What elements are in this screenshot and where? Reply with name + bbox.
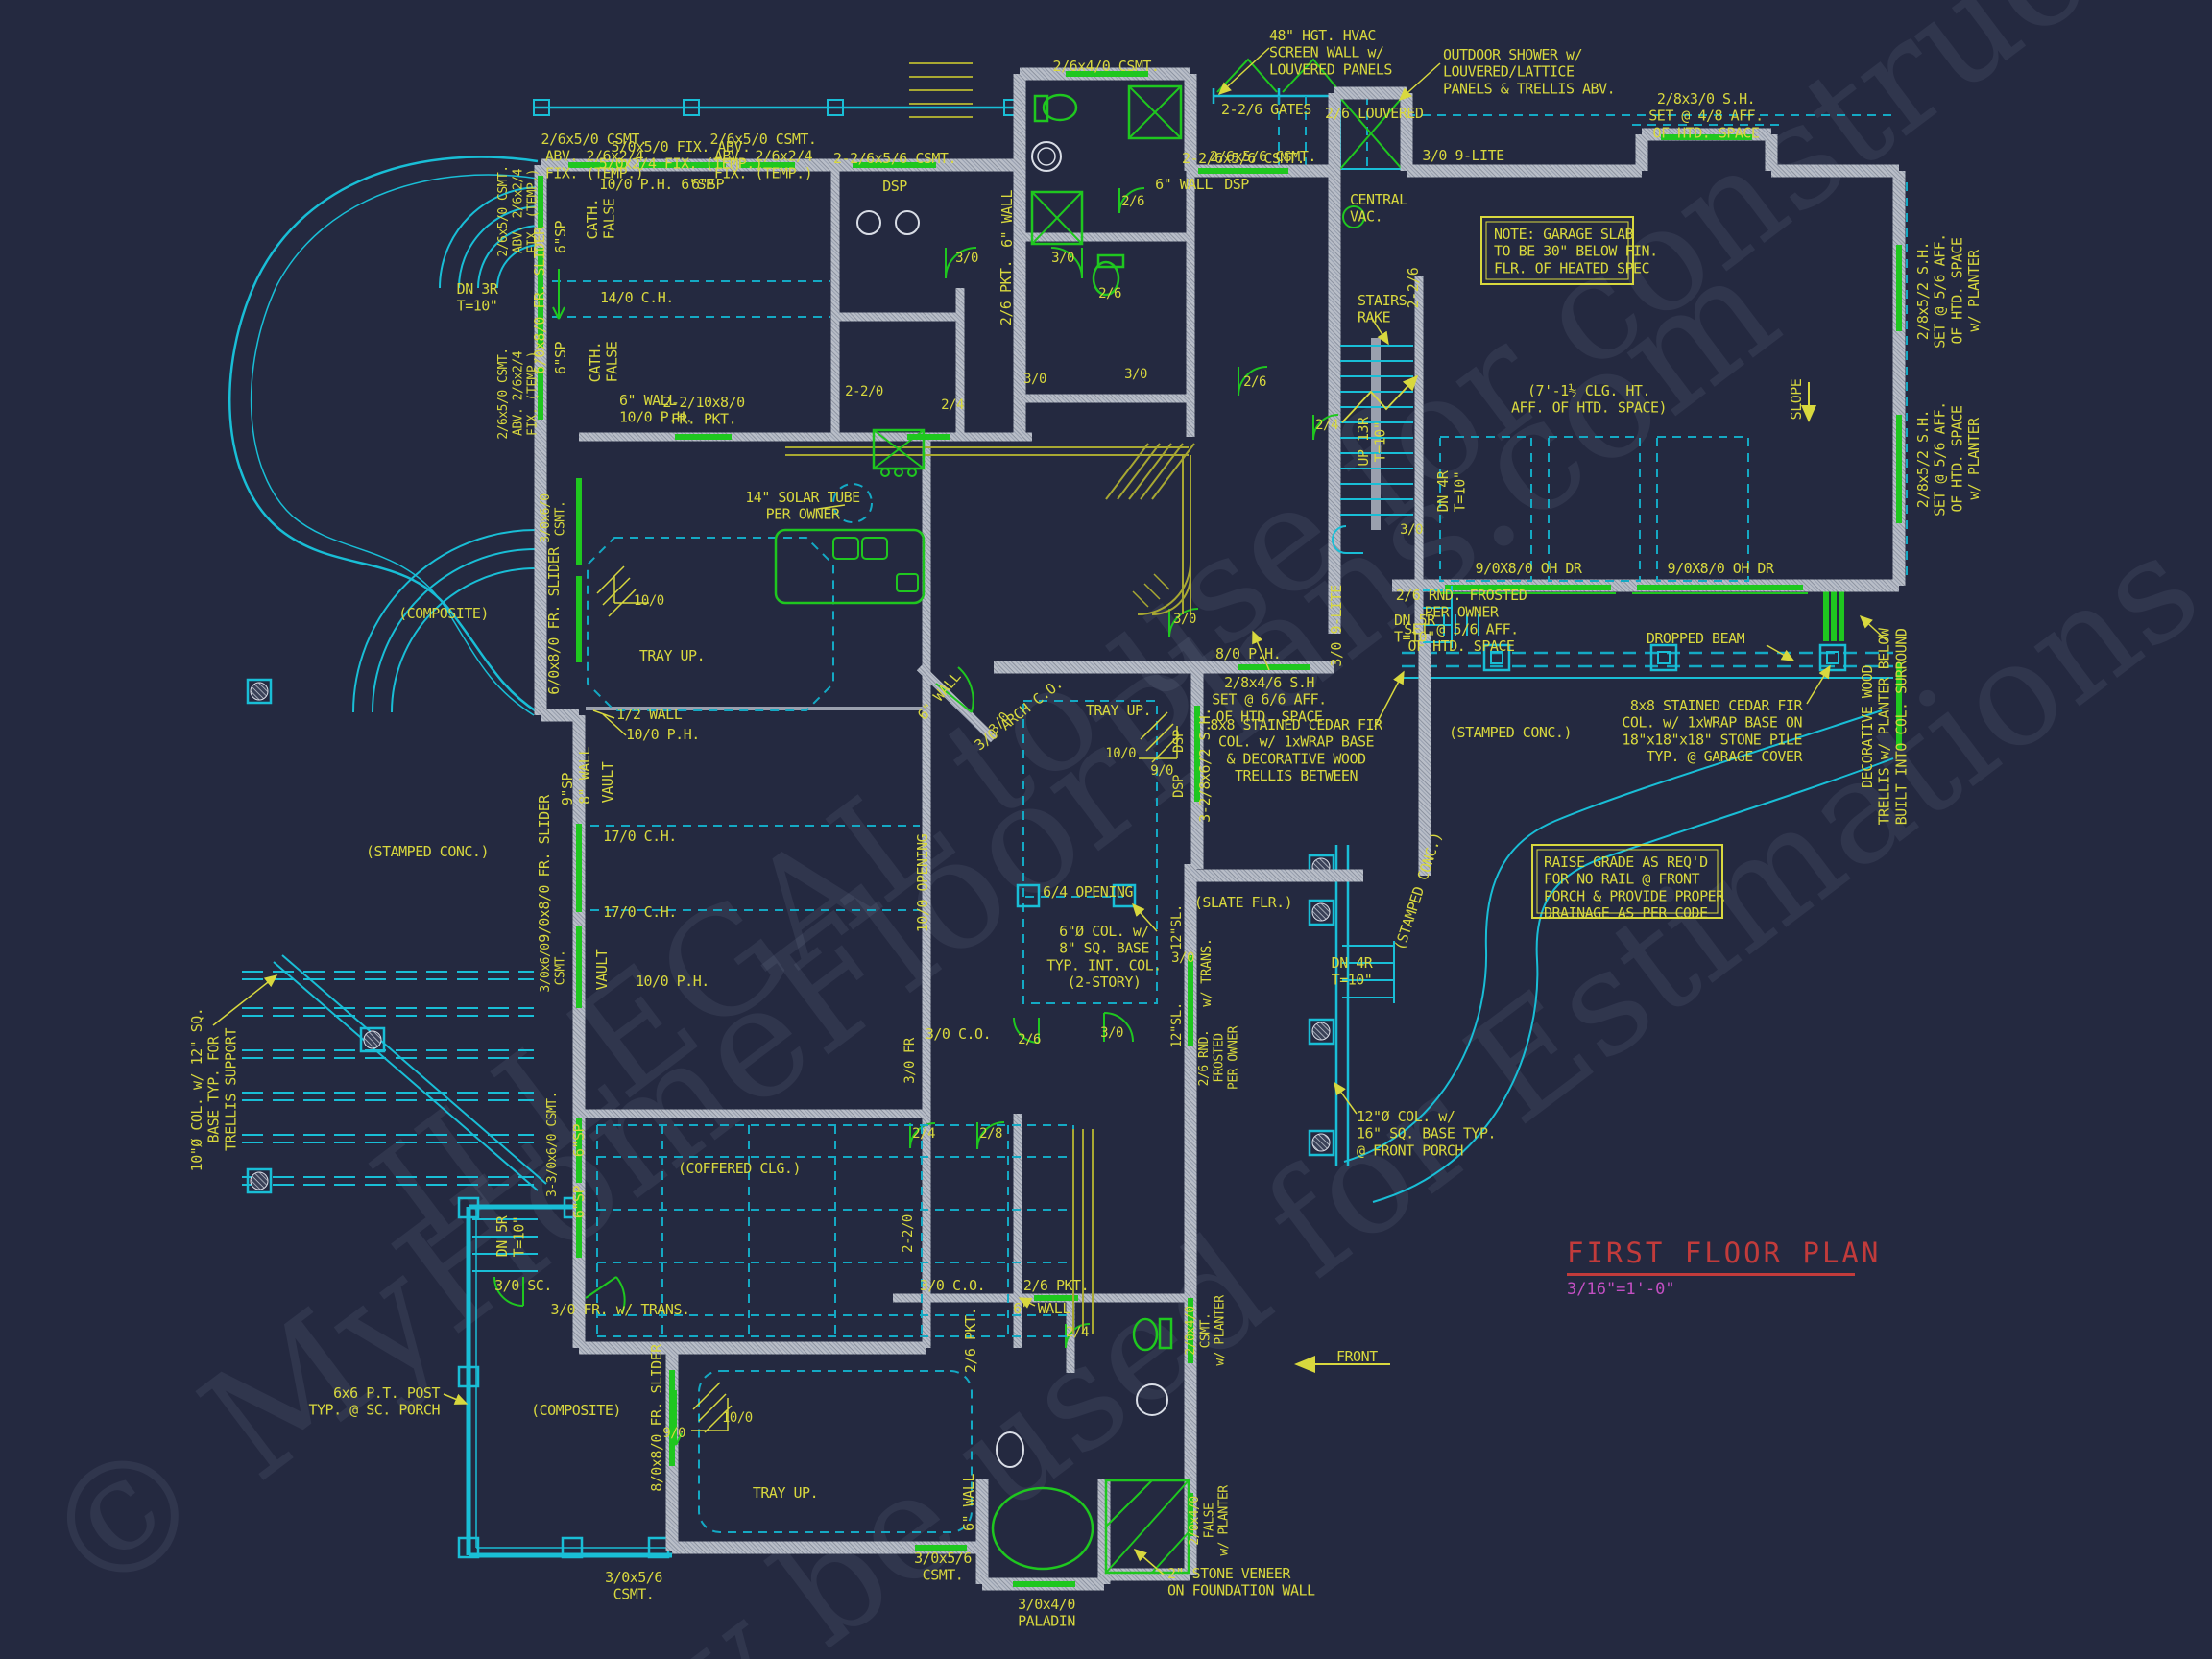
annotation-label: 2/8x5/2 S.H.SET @ 5/6 AFF.OF HTD. SPACEw…: [1914, 401, 1983, 516]
annotation-label: CATH.FALSE: [584, 198, 618, 239]
annotation-label: DSP: [882, 178, 907, 195]
sink: [857, 211, 880, 234]
toilet: [1035, 95, 1076, 121]
annotation-label: 6" WALL: [998, 190, 1016, 248]
annotation-label: 2/4: [912, 1126, 935, 1142]
annotation-label: 3/0: [1100, 1025, 1123, 1041]
annotation-label: 8x8 STAINED CEDAR FIRCOL. w/ 1xWRAP BASE…: [1210, 716, 1383, 784]
annotation-label: 2-2/0: [845, 384, 883, 399]
annotation-label: 3/0: [1124, 367, 1147, 382]
annotation-label: 2/6 LOUVERED: [1325, 105, 1424, 122]
annotation-label: 2-2/0: [901, 1214, 916, 1253]
annotation-label: 6"Ø COL. w/8" SQ. BASETYP. INT. COL.(2-S…: [1046, 923, 1161, 991]
annotation-label: 2/6 PKT.: [998, 260, 1015, 325]
annotation-label: (STAMPED CONC.): [1449, 724, 1572, 741]
annotation-label: 2/6: [1121, 194, 1144, 209]
washer: [1032, 142, 1061, 171]
annotation-label: 6" WALL: [960, 1474, 977, 1531]
slider-arrow: [553, 269, 565, 319]
annotation-label: DSP: [1171, 730, 1187, 753]
annotation-label: 17/0 C.H.: [603, 903, 677, 921]
annotation-label: 3/0x5/6CSMT.: [914, 1550, 972, 1584]
annotation-label: 3-3/0x6/0 CSMT.: [545, 1092, 560, 1197]
annotation-label: 6"SP: [552, 220, 569, 253]
annotation-label: 2/6 RND.FROSTEDPER OWNER: [1197, 1025, 1241, 1090]
annotation-label: 2/4: [1066, 1325, 1089, 1340]
plan-scale: 3/16"=1'-0": [1567, 1280, 1855, 1299]
annotation-label: FRONT: [1336, 1348, 1378, 1365]
annotation-label: 6" WALL: [1013, 1300, 1070, 1317]
annotation-label: DN 4RT=10": [1434, 469, 1469, 512]
annotation-label: 2/6: [1098, 286, 1121, 301]
annotation-label: 10/0: [722, 1410, 753, 1426]
annotation-label: 2/6x4/0 CSMT.: [1053, 58, 1160, 75]
annotation-label: 6"SP: [570, 1123, 588, 1157]
annotation-label: 14" SOLAR TUBEPER OWNER: [745, 489, 860, 523]
annotation-label: 2/6: [1018, 1032, 1041, 1047]
annotation-label: (7'-1½ CLG. HT.AFF. OF HTD. SPACE): [1511, 382, 1667, 417]
annotation-label: 2/6: [1243, 374, 1266, 390]
annotation-label: TRAY UP.: [753, 1484, 818, 1502]
pond-inner: [252, 175, 538, 715]
annotation-label: STAIRSRAKE: [1358, 292, 1407, 326]
annotation-label: 2" STONE VENEERON FOUNDATION WALL: [1167, 1565, 1315, 1599]
annotation-label: 6/0x8/0 FR. SLIDER: [531, 226, 548, 374]
annotation-label: 2/8: [979, 1126, 1002, 1142]
sink: [896, 211, 919, 234]
annotation-label: 10/0 P.H.: [626, 726, 700, 743]
annotation-label: 10/0: [1105, 746, 1136, 761]
annotation-label: 17/0 C.H.: [603, 828, 677, 845]
annotation-label: 3/0: [1171, 950, 1194, 966]
annotation-label: CATH.FALSE: [587, 341, 621, 382]
annotation-label: 3/0x6/0CSMT.: [539, 943, 567, 992]
annotation-label: (STAMPED CONC.): [1391, 830, 1446, 952]
annotation-label: 3/0: [1023, 372, 1046, 387]
annotation-label: 3/0 9-LITE: [1328, 585, 1345, 667]
annotation-label: 6"SP: [691, 176, 725, 193]
annotation-label: UP 13RT=10": [1355, 416, 1389, 467]
annotation-label: 9/0: [662, 1426, 685, 1441]
annotation-label: 8/0x8/0 FR. SLIDER: [648, 1343, 665, 1492]
annotation-label: 3/0: [1173, 612, 1196, 627]
annotation-label: 2-2/6x5/6 CSMT.: [1182, 150, 1305, 167]
plan-title: FIRST FLOOR PLAN: [1567, 1237, 1855, 1276]
washer-door: [1038, 148, 1055, 165]
annotation-label: (COFFERED CLG.): [678, 1160, 801, 1177]
title-block: FIRST FLOOR PLAN 3/16"=1'-0": [1567, 1237, 1855, 1299]
annotation-label: 12"SL.: [1169, 1002, 1185, 1048]
floorplan-sheet: ILLEGAL to use for construction© MyHomeF…: [0, 0, 2212, 1659]
tray-master-sitting: [588, 538, 833, 710]
annotation-label: DN 5RT=10": [493, 1214, 528, 1257]
annotation-label: 9/0: [1150, 763, 1173, 779]
annotation-label: 9/0X8/0 OH DR: [1476, 560, 1583, 577]
annotation-label: 6/0x8/0 FR. SLIDER: [545, 546, 563, 695]
annotation-label: 9"SP: [559, 772, 576, 805]
annotation-label: 3/0x6/0CSMT.: [539, 493, 567, 542]
annotation-label: 2/8x3/0 S.H.SET @ 4/8 AFF.OF HTD. SPACE: [1648, 90, 1763, 141]
annotation-label: 3/0 9-LITE: [1422, 147, 1504, 164]
annotation-label: 2-2/6 GATES: [1221, 101, 1311, 118]
annotation-label: 2-2/10x8/0FR. PKT.: [662, 394, 745, 428]
cath-dashes-master: [552, 281, 830, 317]
annotation-label: DROPPED BEAM: [1647, 630, 1745, 647]
annotation-label: 2/6 PKT.: [1023, 1277, 1089, 1294]
annotation-label: w/ TRANS.: [1199, 938, 1214, 1006]
annotation-label: 2-2/6: [1405, 267, 1422, 308]
annotation-label: 10/0: [634, 593, 664, 609]
annotation-label: 2-2/6x5/6 CSMT.: [833, 150, 956, 167]
annotation-label: VAULT: [593, 949, 611, 990]
annotation-label: SLOPE: [1788, 378, 1805, 420]
annotation-label: DSP: [1224, 176, 1249, 193]
annotation-label: 3/0x5/6CSMT.: [605, 1569, 662, 1603]
annotation-label: 2/4: [1315, 418, 1338, 433]
annotation-label: 6"SP: [552, 341, 569, 374]
annotation-label: 10/0 OPENING: [914, 833, 931, 932]
annotation-label: OUTDOOR SHOWER w/LOUVERED/LATTICEPANELS …: [1443, 46, 1615, 97]
annotation-label: (COMPOSITE): [531, 1402, 621, 1419]
annotation-label: 3/0: [955, 251, 978, 266]
annotation-label: VAULT: [599, 761, 616, 803]
annotation-label: 2/6x5/0 CSMT.ABV. 2/6x2/4FIX. (TEMP.): [710, 131, 817, 181]
annotation-label: 6" WALL: [1155, 176, 1213, 193]
annotation-label: 48" HGT. HVACSCREEN WALL w/LOUVERED PANE…: [1269, 27, 1392, 78]
annotation-label: 12"SL.: [1169, 904, 1185, 950]
annotation-label: 3/0 C.O.: [926, 1025, 991, 1043]
trellis-columns: [248, 680, 384, 1192]
annotation-label: 9/0x8/0 FR. SLIDER: [536, 794, 553, 943]
annotation-label: DN 5RT=10": [1394, 612, 1436, 646]
annotation-label: DSP: [1171, 775, 1187, 798]
annotation-label: 2/8x5/2 S.H.SET @ 5/6 AFF.OF HTD. SPACEw…: [1914, 233, 1983, 348]
annotation-label: RAISE GRADE AS REQ'DFOR NO RAIL @ FRONTP…: [1544, 854, 1725, 922]
annotation-label: 10"Ø COL. w/ 12" SQ.BASE TYP. FORTRELLIS…: [188, 1008, 239, 1172]
annotation-label: 8" WALL: [576, 747, 593, 805]
annotation-label: 3/0 FR: [902, 1037, 918, 1084]
pond-outline: [229, 156, 538, 712]
annotation-label: (SLATE FLR.): [1194, 894, 1292, 911]
annotation-label: TRAY UP.: [1086, 702, 1151, 719]
annotation-label: 3/0: [1051, 251, 1074, 266]
annotation-label: DN 3RT=10": [457, 280, 499, 315]
annotation-label: 10/0 P.H.: [636, 973, 709, 990]
annotation-label: 8/0 P.H.: [1215, 645, 1281, 662]
annotation-label: (COMPOSITE): [398, 605, 489, 622]
annotation-label: 8x8 STAINED CEDAR FIRCOL. w/ 1xWRAP BASE…: [1622, 697, 1803, 765]
annotation-label: 1/2 WALL: [616, 706, 683, 723]
annotation-label: 2/4: [941, 397, 964, 413]
annotation-label: 3/0 FR. w/ TRANS.: [550, 1301, 689, 1318]
annotation-label: 3/0x4/0PALADIN: [1018, 1596, 1075, 1630]
annotation-label: (STAMPED CONC.): [366, 843, 489, 860]
annotation-label: 3/0: [1400, 522, 1423, 538]
annotation-label: 6/4 OPENING: [1043, 883, 1133, 901]
annotation-label: 3/0 C.O.: [920, 1277, 985, 1294]
annotation-label: 2/6 PKT.: [962, 1308, 979, 1373]
annotation-label: 14/0 C.H.: [600, 289, 674, 306]
annotation-label: CENTRALVAC.: [1350, 191, 1407, 226]
floorplan-canvas: ILLEGAL to use for construction© MyHomeF…: [0, 0, 2212, 1659]
annotation-label: 9/0X8/0 OH DR: [1668, 560, 1775, 577]
annotation-label: 6"SP: [570, 1185, 588, 1218]
annotation-label: TRAY UP.: [639, 647, 705, 664]
annotation-label: DN 4RT=10": [1332, 954, 1374, 989]
annotation-label: 3/0 SC.: [494, 1277, 552, 1294]
